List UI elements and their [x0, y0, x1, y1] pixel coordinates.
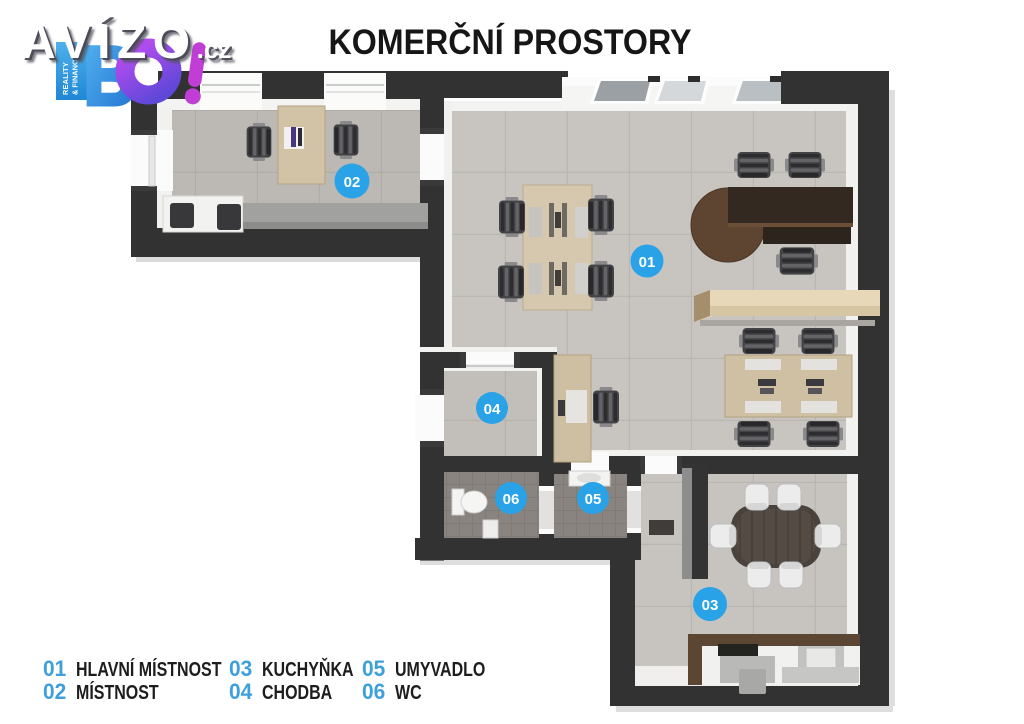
- svg-text:05: 05: [362, 657, 385, 682]
- svg-text:04: 04: [229, 680, 252, 705]
- svg-text:KOMERČNÍ PROSTORY: KOMERČNÍ PROSTORY: [329, 22, 692, 63]
- svg-text:01: 01: [639, 254, 656, 271]
- svg-text:03: 03: [702, 597, 719, 614]
- svg-text:02: 02: [43, 680, 66, 705]
- svg-text:UMYVADLO: UMYVADLO: [395, 658, 485, 680]
- svg-text:KUCHYŇKA: KUCHYŇKA: [262, 657, 354, 680]
- svg-text:04: 04: [484, 401, 501, 418]
- svg-text:WC: WC: [395, 681, 422, 703]
- svg-text:03: 03: [229, 657, 252, 682]
- svg-text:02: 02: [344, 174, 361, 191]
- svg-text:05: 05: [585, 491, 602, 508]
- svg-text:06: 06: [362, 680, 385, 705]
- svg-text:HLAVNÍ MÍSTNOST: HLAVNÍ MÍSTNOST: [76, 657, 221, 680]
- svg-text:01: 01: [43, 657, 66, 682]
- svg-text:CHODBA: CHODBA: [262, 681, 332, 703]
- svg-text:06: 06: [503, 491, 520, 508]
- svg-text:MÍSTNOST: MÍSTNOST: [76, 680, 159, 703]
